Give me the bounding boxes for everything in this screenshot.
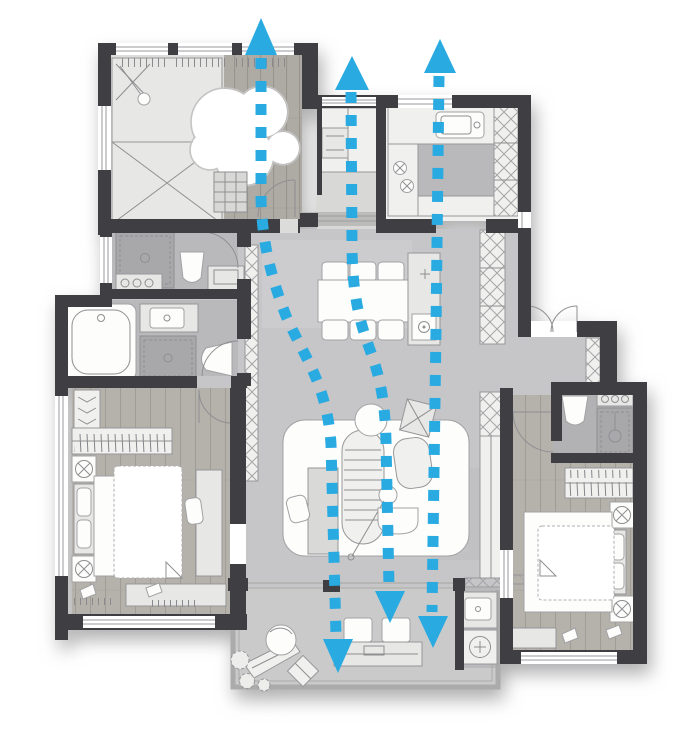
- balcony-door-opening: [230, 524, 246, 564]
- shelf-grid: [214, 172, 247, 212]
- window: [178, 43, 232, 55]
- dining-chair: [322, 320, 348, 340]
- stool: [382, 618, 410, 642]
- chaise-lounge: [342, 430, 384, 544]
- lamp-icon: [138, 93, 150, 105]
- curtain-strip: [118, 58, 166, 67]
- dining-chair: [378, 262, 404, 282]
- entry: [525, 306, 579, 337]
- plant-icon: [258, 679, 270, 691]
- window-sill-hatch: [465, 578, 501, 587]
- shower-zone: [140, 336, 196, 380]
- duvet: [114, 466, 182, 578]
- stool: [344, 618, 372, 642]
- toilet-icon: [562, 396, 588, 425]
- plant-icon: [240, 674, 255, 689]
- appliance-icon: [322, 128, 348, 158]
- plant-icon: [231, 651, 249, 669]
- kitchen-center-floor: [416, 142, 496, 198]
- round-chair: [266, 625, 296, 655]
- window: [518, 212, 531, 228]
- kitchen-counter-left: [388, 144, 418, 216]
- chair: [184, 497, 203, 525]
- sink-icon: [150, 308, 184, 328]
- kids-door-opening: [280, 219, 298, 233]
- shoe-shelf: [74, 390, 100, 428]
- window: [83, 616, 215, 628]
- utility-sink: [465, 598, 491, 620]
- window: [521, 652, 617, 664]
- utility-room: [461, 592, 497, 664]
- flow-middle-start-arrowhead: [335, 56, 369, 90]
- cabinet-hatch: [494, 106, 518, 216]
- window: [100, 237, 112, 283]
- living-area: [283, 399, 469, 560]
- shoe-cabinet-hatch: [586, 338, 600, 388]
- duvet: [538, 526, 614, 600]
- bay-window: [55, 396, 68, 576]
- dining-chair: [378, 320, 404, 340]
- flow-left-start-arrowhead: [245, 18, 277, 55]
- window: [500, 550, 513, 598]
- radiator-strip: [74, 598, 114, 605]
- window: [98, 106, 111, 170]
- dining-area: [318, 253, 440, 345]
- flow-right-start-arrowhead: [424, 39, 456, 73]
- floor-plan-image: [0, 0, 700, 741]
- bedroom-door-opening: [197, 376, 231, 388]
- window-bench: [508, 628, 556, 648]
- dining-chair: [322, 262, 348, 282]
- window: [116, 43, 168, 55]
- dining-table: [318, 280, 408, 322]
- storage-hatch: [480, 392, 502, 436]
- curtain-strip: [176, 58, 228, 67]
- radiator-strip: [150, 600, 200, 607]
- toilet-icon: [180, 252, 204, 283]
- storage-hatch: [480, 230, 505, 344]
- floor-plan-canvas: [0, 0, 700, 741]
